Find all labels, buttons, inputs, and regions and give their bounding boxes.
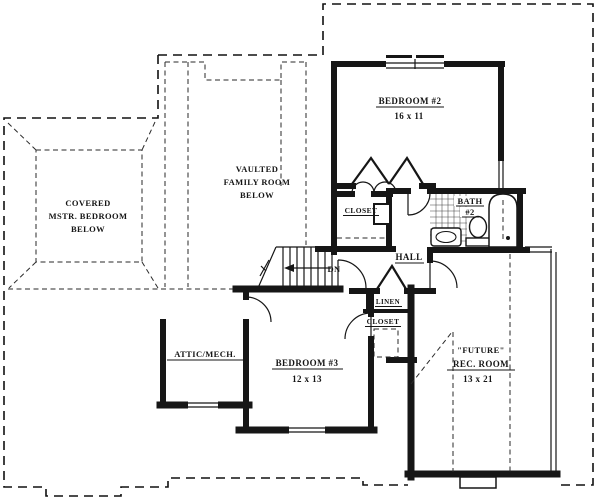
rec-room-future-double-walls <box>525 247 556 474</box>
family-vertical-dashed <box>165 62 306 287</box>
hall-label: HALL <box>395 252 422 262</box>
roofline-top-right <box>158 4 593 485</box>
rec-room-dims: 13 x 21 <box>463 374 493 384</box>
window-sill-top-2 <box>416 55 444 58</box>
stairs-door-arc <box>338 260 366 288</box>
linen-label: LINEN <box>376 298 400 306</box>
stairs-dn-label: DN <box>327 264 341 274</box>
bedroom3-name: BEDROOM #3 <box>276 358 339 368</box>
bath2-door-arc <box>408 193 430 215</box>
master-bedroom-label-2: MSTR. BEDROOM <box>49 211 128 221</box>
window-sill-top-1 <box>386 55 412 58</box>
bath2-number: #2 <box>465 207 474 217</box>
attic-mech-label: ATTIC/MECH. <box>174 349 236 359</box>
bedroom2-double-door-leaves <box>352 158 423 184</box>
family-room-below-outline <box>165 62 306 287</box>
master-bedroom-below-outline <box>8 122 237 289</box>
floor-plan-page: COVERED MSTR. BEDROOM BELOW VAULTED FAMI… <box>0 0 600 501</box>
bedroom2-closet-label: CLOSET <box>345 206 378 215</box>
bedroom3-dims: 12 x 13 <box>292 374 322 384</box>
attic-window-gap <box>188 400 218 410</box>
family-room-label-1: VAULTED <box>236 164 279 174</box>
master-bedroom-label-1: COVERED <box>65 198 110 208</box>
family-top-dashed-notch <box>165 62 306 80</box>
rec-room-name: REC. ROOM <box>453 359 509 369</box>
bedroom2-dims: 16 x 11 <box>394 111 423 121</box>
rec-room-qualifier: "FUTURE" <box>457 345 505 355</box>
rec-room-door-arc <box>430 261 457 288</box>
bath2-name: BATH <box>457 196 482 206</box>
family-room-label-2: FAMILY ROOM <box>224 177 291 187</box>
bath2-toilet-bowl <box>470 217 487 238</box>
attic-walls <box>160 322 249 410</box>
bedroom3-door-arc <box>246 297 271 322</box>
family-room-label-3: BELOW <box>240 190 274 200</box>
stairs <box>258 247 338 288</box>
floor-plan-drawing: COVERED MSTR. BEDROOM BELOW VAULTED FAMI… <box>0 0 600 501</box>
center-walls <box>236 250 457 291</box>
bedroom3-closet-label: CLOSET <box>367 317 400 326</box>
stairs-arrow-head <box>284 264 294 272</box>
bedroom3-window-gap <box>289 424 325 436</box>
bath2-toilet-tank <box>466 238 491 246</box>
master-bedroom-label-3: BELOW <box>71 224 105 234</box>
rec-room-step <box>460 477 496 488</box>
bedroom2-name: BEDROOM #2 <box>379 96 442 106</box>
closet3-dashed-rect <box>374 329 398 357</box>
window-gap-right <box>495 161 507 188</box>
bedroom2-windows <box>386 55 507 188</box>
hall-south-door-leaves <box>377 266 406 289</box>
bath2-sink-bowl <box>436 232 456 243</box>
bath2-tub-drain <box>506 236 510 240</box>
